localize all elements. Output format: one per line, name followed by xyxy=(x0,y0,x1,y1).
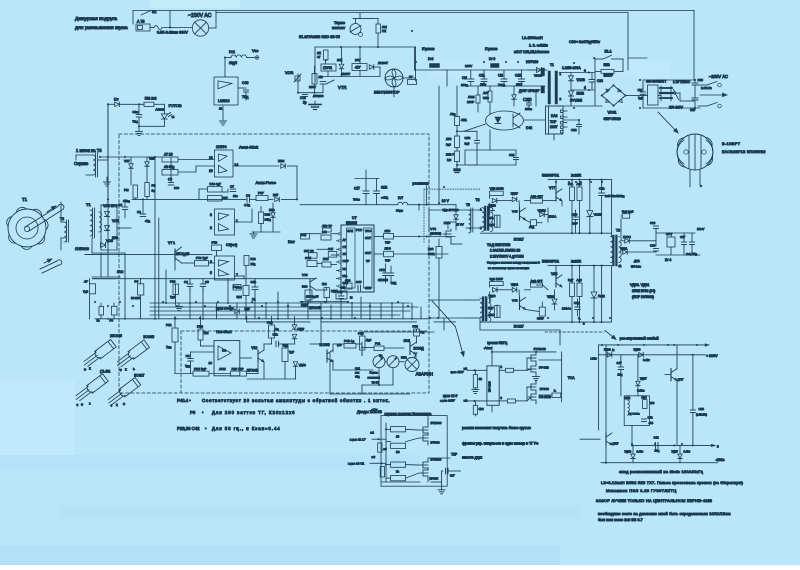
svg-text:м1: м1 xyxy=(370,431,374,435)
svg-text:Э: Э xyxy=(81,403,83,407)
svg-text:лб: лб xyxy=(383,447,387,451)
svg-text:ВYV26Е: ВYV26Е xyxy=(570,99,582,103)
svg-text:Юрмакс: Юрмакс xyxy=(422,47,435,51)
svg-text:230Р: 230Р xyxy=(467,100,474,104)
svg-text:+47д: +47д xyxy=(381,196,388,200)
svg-text:расшивка: расшивка xyxy=(413,182,429,186)
svg-text:ЯЗФ: ЯЗФ xyxy=(385,247,392,251)
svg-text:3д0: 3д0 xyxy=(465,142,470,146)
svg-text:Сб: Сб xyxy=(186,354,190,358)
svg-text:Ь: Ь xyxy=(133,367,135,371)
svg-text:ОUТ: ОUТ xyxy=(365,251,371,255)
svg-text:R5В: R5В xyxy=(604,63,610,67)
svg-text:10: 10 xyxy=(209,169,213,173)
svg-text:Т5: Т5 xyxy=(466,203,470,207)
svg-text:1.МК6-200А: 1.МК6-200А xyxy=(562,66,581,70)
svg-text:С13: С13 xyxy=(654,436,660,440)
svg-text:РдТ: РдТ xyxy=(568,278,573,282)
svg-text:С20: С20 xyxy=(523,97,532,102)
svg-text:АУ: АУ xyxy=(84,280,88,284)
svg-text:240: 240 xyxy=(322,230,327,234)
svg-text:РВЗ: РВЗ xyxy=(642,396,648,400)
svg-text:№: № xyxy=(97,319,100,323)
svg-text:СО: СО xyxy=(222,349,227,353)
svg-text:(ЯУП4В): (ЯУП4В) xyxy=(430,232,441,236)
svg-text:Сервис: Сервис xyxy=(74,161,88,166)
svg-text:10: 10 xyxy=(209,361,213,365)
svg-text:СМ: СМ xyxy=(462,76,467,80)
svg-text:470Р: 470Р xyxy=(488,223,495,227)
svg-text:1В27Р: 1В27Р xyxy=(604,74,614,78)
svg-text:76-75: 76-75 xyxy=(372,381,380,385)
svg-text:R3: R3 xyxy=(396,450,400,454)
svg-text:а рив 141У: а рив 141У xyxy=(440,399,455,403)
svg-text:1 виток на Т3: 1 виток на Т3 xyxy=(76,148,102,153)
svg-text:VТ3: VТ3 xyxy=(302,273,308,277)
svg-text:ЛдЗ: ЛдЗ xyxy=(366,338,372,342)
svg-text:РдЗ 120Р: РдЗ 120Р xyxy=(490,277,503,281)
svg-text:50В60РD1: 50В60РD1 xyxy=(542,260,559,264)
svg-text:470Р: 470Р xyxy=(488,313,495,317)
svg-text:20: 20 xyxy=(396,435,400,439)
svg-text:в: в xyxy=(717,445,719,449)
svg-text:УД3В: УД3В xyxy=(625,450,632,454)
svg-text:2х20R: 2х20R xyxy=(571,174,582,178)
svg-text:УД3В: УД3В xyxy=(634,348,641,352)
svg-text:5ЛФ: 5ЛФ xyxy=(483,96,490,100)
svg-text:С3: С3 xyxy=(168,178,172,182)
svg-text:СТ: СТ xyxy=(343,245,347,249)
svg-text:1З1Ач: 1З1Ач xyxy=(562,307,571,311)
svg-text:Р4В 1д: Р4В 1д xyxy=(344,339,354,343)
svg-text:ЯВ: ЯВ xyxy=(319,75,323,79)
svg-text:7дВ: 7дВ xyxy=(638,96,643,100)
svg-text:VД32: VД32 xyxy=(547,295,555,299)
svg-text:С40: С40 xyxy=(242,81,249,85)
svg-text:25С945: 25С945 xyxy=(110,334,122,338)
svg-text:VД36. VД31: VД36. VД31 xyxy=(630,283,649,287)
svg-text:Э: Э xyxy=(84,368,86,372)
svg-text:РVС: РVС xyxy=(356,228,363,232)
svg-text:20в: 20в xyxy=(233,194,238,198)
svg-text:10дн: 10дн xyxy=(396,209,403,213)
svg-text:С32: С32 xyxy=(571,128,577,132)
svg-text:ПЛЗ: ПЛЗ xyxy=(323,257,329,261)
svg-text:вместо двух: вместо двух xyxy=(462,456,482,460)
svg-text:18+V: 18+V xyxy=(697,227,705,231)
svg-text:КЛВ: КЛВ xyxy=(269,208,275,212)
svg-text:ЗАО: ЗАО xyxy=(117,270,124,274)
svg-text:SУН: SУН xyxy=(347,229,353,233)
svg-text:VД2 120R: VД2 120R xyxy=(490,187,505,191)
svg-text:ПК: ПК xyxy=(382,29,386,33)
svg-text:b: b xyxy=(583,322,585,326)
svg-text:АСМ: АСМ xyxy=(219,367,226,371)
svg-text:27 9V: 27 9V xyxy=(456,223,464,227)
svg-text:VD5: VD5 xyxy=(112,219,119,223)
svg-text:КЛМ: КЛМ xyxy=(278,159,285,163)
svg-text:2р: 2р xyxy=(303,101,307,105)
svg-text:L2=0.12мкН ВЛ92 52В 7Х7. Гильз: L2=0.12мкН ВЛ92 52В 7Х7. Гильза прессова… xyxy=(601,480,744,485)
svg-text:вкл: вкл xyxy=(355,372,360,375)
svg-text:R52 7: R52 7 xyxy=(446,153,454,157)
svg-text:VТ 1: VТ 1 xyxy=(168,241,175,245)
svg-text:крив М-?: крив М-? xyxy=(443,394,457,398)
svg-text:1.6Вт: 1.6Вт xyxy=(684,450,691,454)
svg-text:700н: 700н xyxy=(353,198,360,202)
svg-text:С4: С4 xyxy=(184,280,188,284)
svg-text:С31: С31 xyxy=(509,153,515,157)
svg-text:V12: V12 xyxy=(251,346,257,350)
svg-text:Анти-Stick: Анти-Stick xyxy=(239,145,258,150)
svg-text:Т2: Т2 xyxy=(476,198,480,202)
svg-text:V1В: V1В xyxy=(551,272,558,276)
svg-text:С5: С5 xyxy=(343,252,347,256)
svg-text:ЯМ00Т: ЯМ00Т xyxy=(378,61,388,65)
svg-text:А7 1В: А7 1В xyxy=(164,153,173,157)
svg-text:КЛ7: КЛ7 xyxy=(273,193,279,197)
svg-text:Т2-Д К2ВХ7Х2В: Т2-Д К2ВХ7Х2В xyxy=(487,243,510,247)
svg-text:GND: GND xyxy=(365,286,371,290)
svg-text:К1.1: К1.1 xyxy=(605,50,612,54)
svg-text:Р2З 7ЗР: Р2З 7ЗР xyxy=(232,367,244,371)
svg-text:R36: R36 xyxy=(428,247,434,251)
svg-text:VТ7: VТ7 xyxy=(549,186,555,190)
svg-text:7Вд: 7Вд xyxy=(132,120,138,124)
svg-text:СЯ0: СЯ0 xyxy=(465,136,471,140)
svg-text:С4J: С4J xyxy=(328,247,334,251)
svg-text:Р1В: Р1В xyxy=(170,280,175,284)
svg-text:ВС6ЗБ: ВС6ЗБ xyxy=(143,335,155,339)
svg-text:(Т17: (Т17 xyxy=(613,442,619,446)
svg-text:DА3: DА3 xyxy=(551,114,558,118)
svg-text:200: 200 xyxy=(650,401,655,405)
svg-text:+50: +50 xyxy=(649,421,654,425)
svg-text:С4В: С4В xyxy=(337,290,343,294)
svg-text:ВС327: ВС327 xyxy=(134,374,144,378)
svg-text:VД12: VД12 xyxy=(299,363,306,367)
svg-text:РН-9ЕЛВ: РН-9ЕЛВ xyxy=(539,395,551,399)
svg-text:7дд: 7дд xyxy=(166,345,171,349)
svg-text:СМ: СМ xyxy=(498,74,503,78)
svg-text:Юрмакс: Юрмакс xyxy=(485,47,498,51)
svg-text:для уменьшения шума: для уменьшения шума xyxy=(75,26,128,31)
svg-text:430д: 430д xyxy=(123,199,130,203)
svg-text:080R: 080R xyxy=(428,252,435,256)
svg-text:224Y: 224Y xyxy=(550,125,558,129)
svg-text:УД37: УД37 xyxy=(640,377,647,381)
svg-text:Т1: Т1 xyxy=(22,197,28,202)
svg-text:Dr7: Dr7 xyxy=(398,196,403,200)
svg-text:Т1: Т1 xyxy=(86,202,91,207)
svg-text:R3В: R3В xyxy=(488,216,494,220)
svg-text:600: 600 xyxy=(174,186,179,190)
svg-text:VDR: VDR xyxy=(285,70,294,75)
svg-text:1Н5?4: 1Н5?4 xyxy=(216,145,226,149)
svg-text:D42: D42 xyxy=(526,126,532,130)
svg-text:1. 2. о.6М3в: 1. 2. о.6М3в xyxy=(529,44,548,48)
svg-text:50В60РD1: 50В60РD1 xyxy=(542,174,559,178)
svg-text:1 ЗА1ТКА ПЗЛ1В 2В: 1 ЗА1ТКА ПЗЛ1В 2В xyxy=(490,249,520,253)
svg-text:4.7д: 4.7д xyxy=(244,203,250,207)
svg-text:РТВ: РТВ xyxy=(212,241,218,245)
svg-text:7дР: 7дР xyxy=(289,350,294,354)
svg-text:расним позволяет получить боле: расним позволяет получить более крутые xyxy=(462,426,531,430)
svg-text:С20: С20 xyxy=(699,407,705,411)
svg-text:2х30R: 2х30R xyxy=(571,260,582,264)
svg-text:С6(зел): С6(зел) xyxy=(226,243,237,247)
svg-text:22д: 22д xyxy=(618,373,623,377)
svg-text:УД17: УД17 xyxy=(511,191,519,195)
svg-text:Р40.4 •: Р40.4 • xyxy=(177,398,191,403)
svg-text:А3д: А3д xyxy=(450,112,456,116)
svg-text:4Т: 4Т xyxy=(317,55,321,59)
svg-text:Для 50 гц., и Кзап=0.44: Для 50 гц., и Кзап=0.44 xyxy=(212,426,281,431)
svg-text:СМР: СМР xyxy=(343,259,349,263)
svg-text:+ 300V: + 300V xyxy=(706,354,718,358)
svg-text:АТ: АТ xyxy=(343,238,347,242)
svg-text:ИР4426: ИР4426 xyxy=(488,381,492,392)
svg-text:2: 2 xyxy=(210,226,212,230)
svg-text:160V: 160V xyxy=(465,64,473,68)
svg-text:VDS1: VDS1 xyxy=(608,111,617,115)
svg-text:С3В: С3В xyxy=(343,281,349,285)
svg-text:Р9: Р9 xyxy=(190,410,196,415)
svg-text:СЛ: СЛ xyxy=(118,203,122,207)
svg-text:Зарядное питание между выпуска: Зарядное питание между выпусками 3 xyxy=(487,261,540,265)
svg-text:Т5Р: Т5Р xyxy=(451,453,458,457)
svg-text:Для 200 ваттов ТГ, К20х12х6: Для 200 ваттов ТГ, К20х12х6 xyxy=(212,410,296,415)
svg-text:ЛЗМ: ЛЗМ xyxy=(468,95,475,99)
svg-text:ЛУ613С: ЛУ613С xyxy=(313,94,323,98)
svg-text:Р2В: Р2В xyxy=(267,321,273,325)
svg-text:Анти-Force: Анти-Force xyxy=(256,180,277,185)
svg-text:25С2д4Б: 25С2д4Б xyxy=(176,252,189,256)
svg-text:РДУ: РДУ xyxy=(245,307,251,311)
svg-text:УД37: УД37 xyxy=(672,450,679,454)
svg-text:7ЗР: 7ЗР xyxy=(385,258,390,262)
svg-text:Р16 4д7: Р16 4д7 xyxy=(210,182,222,186)
svg-text:Э: Э xyxy=(120,368,122,372)
svg-text:ЫЗ: ЫЗ xyxy=(447,158,452,162)
svg-text:25С2д45: 25С2д45 xyxy=(306,295,319,299)
svg-text:Я1З: Я1З xyxy=(385,229,391,233)
svg-text:АЛ3б7: АЛ3б7 xyxy=(156,108,165,112)
svg-text:2.: 2. xyxy=(554,389,557,393)
svg-text:б: б xyxy=(584,86,586,90)
svg-text:А1Р: А1Р xyxy=(572,222,578,226)
svg-text:11: 11 xyxy=(619,264,622,268)
svg-text:Рд0 1дЯ: Рд0 1дЯ xyxy=(622,210,633,214)
svg-text:5: 5 xyxy=(210,271,212,275)
svg-text:Р0: Р0 xyxy=(110,319,114,323)
svg-text:С1В: С1В xyxy=(381,186,387,190)
svg-text:L1-1500мкН: L1-1500мкН xyxy=(522,36,543,40)
svg-text:СМ: СМ xyxy=(638,88,643,92)
svg-text:VД31: VД31 xyxy=(620,247,628,251)
svg-text:ЕАОВ2ВУ1В ВП350НМ: ЕАОВ2ВУ1В ВП350НМ xyxy=(722,150,766,154)
svg-text:А8 82д: А8 82д xyxy=(164,165,174,169)
svg-text:кромки 5МГц: кромки 5МГц xyxy=(487,341,507,345)
svg-text:ИР330: ИР330 xyxy=(430,477,439,481)
svg-text:1д: 1д xyxy=(252,297,256,301)
svg-text:VСС: VСС xyxy=(365,229,372,233)
svg-text:А9В 4RТ: А9В 4RТ xyxy=(531,195,544,199)
svg-text:20V: 20V xyxy=(355,58,361,62)
svg-text:FВ: FВ xyxy=(343,267,347,271)
svg-text:VТR: VТR xyxy=(338,85,347,90)
svg-text:Диоды Ж414В: Диоды Ж414В xyxy=(357,410,382,414)
svg-text:контакт: контакт xyxy=(332,26,345,30)
svg-text:анод расположенный на diode 13: анод расположенный на diode 130А30кГц xyxy=(619,469,704,474)
svg-text:МУР810: МУР810 xyxy=(526,60,538,64)
svg-text:~230V АС: ~230V АС xyxy=(709,74,728,79)
svg-text:С?Д: С?Д xyxy=(574,301,580,305)
svg-text:5Н4: 5Н4 xyxy=(237,295,243,299)
svg-text:Р31: Р31 xyxy=(375,342,381,346)
svg-text:Э: Э xyxy=(123,402,125,406)
svg-text:необходимо всего на давление: необходимо всего на давление мной быть о… xyxy=(598,512,731,516)
svg-text:Vсс: Vсс xyxy=(252,49,258,53)
svg-text:ЫЛ2: ЫЛ2 xyxy=(625,396,631,400)
svg-text:+Ом: +Ом xyxy=(371,408,377,412)
svg-text:4W1: 4W1 xyxy=(461,118,467,122)
svg-text:100м: 100м xyxy=(525,107,532,111)
svg-text:22д: 22д xyxy=(655,449,660,453)
svg-text:ВС327: ВС327 xyxy=(514,325,524,329)
svg-text:10дН: 10дН xyxy=(229,61,238,65)
svg-text:VD1В: VD1В xyxy=(594,213,602,217)
svg-text:С7В: С7В xyxy=(379,268,385,272)
svg-text:2х5-5Вх4В20д: 2х5-5Вх4В20д xyxy=(605,194,625,198)
svg-text:1Н1А: 1Н1А xyxy=(549,215,558,219)
svg-text:~230V AC: ~230V AC xyxy=(188,13,212,19)
svg-text:контакты: контакты xyxy=(368,376,380,380)
svg-text:З6Г: З6Г xyxy=(450,474,455,478)
svg-text:ш7х7 12В,15,14витков: ш7х7 12В,15,14витков xyxy=(514,50,549,54)
svg-text:47У: 47У xyxy=(355,66,362,70)
svg-text:ЗТ0Р: ЗТ0Р xyxy=(537,317,544,321)
svg-text:270-380V: 270-380V xyxy=(669,106,684,110)
svg-text:4В: 4В xyxy=(479,377,483,381)
svg-text:Термо: Термо xyxy=(334,21,345,25)
svg-text:VD6: VD6 xyxy=(106,239,113,243)
svg-text:IРГ9З0: IРГ9З0 xyxy=(540,387,549,391)
svg-text:А59 7Р: А59 7Р xyxy=(322,224,332,228)
svg-text:к рив 14 U1: к рив 14 U1 xyxy=(348,461,365,465)
svg-text:Рб: Рб xyxy=(135,280,139,284)
svg-text:РF-З2В: РF-З2В xyxy=(539,366,549,370)
svg-text:VD2В: VD2В xyxy=(577,78,585,82)
svg-text:ПГ: ПГ xyxy=(409,75,413,79)
svg-text:R22: R22 xyxy=(265,213,271,217)
svg-text:№2: №2 xyxy=(322,282,327,286)
svg-text:С5: С5 xyxy=(205,280,209,284)
svg-text:7дд: 7дд xyxy=(185,364,190,368)
svg-text:С?7: С?7 xyxy=(680,235,686,239)
svg-text:АчВ 4РТ: АчВ 4РТ xyxy=(531,279,543,283)
svg-text:+Vпит: +Vпит xyxy=(484,346,493,350)
svg-text:ТОР: ТОР xyxy=(550,120,556,124)
svg-text:ВЕНТИЛЯТОР: ВЕНТИЛЯТОР xyxy=(374,91,400,95)
svg-text:КЯ 5.6н: КЯ 5.6н xyxy=(631,265,641,269)
svg-text:R30: R30 xyxy=(302,285,308,289)
svg-text:НЛ2: НЛ2 xyxy=(401,356,407,360)
svg-text:ЗАЗОР ЛУЧШЕ ТОЛЬКО НА ЦЕНТРАЛЬ: ЗАЗОР ЛУЧШЕ ТОЛЬКО НА ЦЕНТРАЛЬНОМ КЕРНЕ~… xyxy=(596,498,712,503)
svg-text:Т3: Т3 xyxy=(616,229,620,233)
svg-text:Dr 4: Dr 4 xyxy=(665,258,671,262)
svg-text:С36: С36 xyxy=(698,78,704,82)
svg-text:С33= 3х470д/450v: С33= 3х470д/450v xyxy=(569,40,600,44)
svg-text:С2В: С2В xyxy=(572,213,578,217)
svg-text:Герма: Герма xyxy=(370,371,379,375)
svg-text:К32 1к2: К32 1к2 xyxy=(145,97,157,101)
svg-text:ЛМ00Т: ЛМ00Т xyxy=(341,72,350,76)
svg-text:72В: 72В xyxy=(204,331,209,335)
svg-text:С2: С2 xyxy=(137,210,141,214)
svg-text:IРF930: IРF930 xyxy=(431,441,441,445)
svg-text:IРН9ЬЗВ: IРН9ЬЗВ xyxy=(534,347,546,351)
svg-text:UТ: UТ xyxy=(352,216,358,220)
svg-text:ВС6ЗД: ВС6ЗД xyxy=(414,347,425,351)
svg-text:ЫДН: ЫДН xyxy=(301,303,308,307)
svg-text:3: 3 xyxy=(210,213,212,217)
svg-text:С2Д: С2Д xyxy=(391,281,397,285)
svg-text:Механизм ПЭЛ 0.29 ГУЗ97ЛИТЦ: Механизм ПЭЛ 0.29 ГУЗ97ЛИТЦ xyxy=(606,488,677,493)
svg-text:ГОЗО: ГОЗО xyxy=(623,235,631,239)
svg-text:З: З xyxy=(77,403,79,407)
svg-text:С2В: С2В xyxy=(515,74,521,78)
svg-text:РД1?: РД1? xyxy=(298,327,305,331)
svg-text:VТ4: VТ4 xyxy=(430,227,436,231)
svg-text:Р23: Р23 xyxy=(251,257,256,261)
svg-text:(ТL431: (ТL431 xyxy=(100,370,111,374)
svg-text:11: 11 xyxy=(219,107,222,111)
svg-text:Нot-Start: Нot-Start xyxy=(216,330,232,334)
svg-text:VЛ7: VЛ7 xyxy=(124,159,130,163)
svg-text:С11: С11 xyxy=(273,333,279,337)
svg-text:Р34: Р34 xyxy=(237,286,242,290)
svg-text:ОUТ: ОUТ xyxy=(365,236,371,240)
svg-text:18 V: 18 V xyxy=(442,199,450,203)
svg-text:РН4 7дР: РН4 7дР xyxy=(194,367,206,371)
svg-text:Dr4: Dr4 xyxy=(428,57,433,61)
svg-text:тВд: тВд xyxy=(355,375,360,379)
svg-text:С7: С7 xyxy=(230,185,234,189)
svg-text:7Вд: 7Вд xyxy=(242,95,248,99)
svg-text:РЗУ: РЗУ xyxy=(258,191,264,195)
svg-text:(ч)СВ С4-5д2: (ч)СВ С4-5д2 xyxy=(216,306,234,310)
svg-text:был нем всего 2х0 ВВ 0.7: был нем всего 2х0 ВВ 0.7 xyxy=(598,518,643,522)
svg-text:ГОТОВ: ГОТОВ xyxy=(169,103,182,108)
svg-text:а: а xyxy=(584,69,586,73)
svg-text:РМ: РМ xyxy=(124,188,129,192)
svg-text:С-Я: С-Я xyxy=(300,96,306,100)
svg-text:Я50: Я50 xyxy=(446,137,452,141)
svg-text:С?8: С?8 xyxy=(650,221,656,225)
svg-text:VД1М: VД1М xyxy=(538,209,547,213)
svg-text:1К300Л: 1К300Л xyxy=(378,278,388,282)
svg-text:(ЯUР НУ5060): (ЯUР НУ5060) xyxy=(632,295,654,299)
svg-text:С1В: С1В xyxy=(251,280,257,284)
svg-text:РУВ: РУВ xyxy=(197,325,203,329)
svg-text:УД39: УД39 xyxy=(604,348,611,352)
svg-text:С42: С42 xyxy=(648,416,653,420)
svg-text:С4М: С4М xyxy=(305,256,312,260)
svg-text:7ЗР: 7ЗР xyxy=(385,241,390,245)
svg-text:Юг: Юг xyxy=(114,98,119,102)
svg-text:не меньшему срыве изоляции: не меньшему срыве изоляции xyxy=(488,266,530,270)
